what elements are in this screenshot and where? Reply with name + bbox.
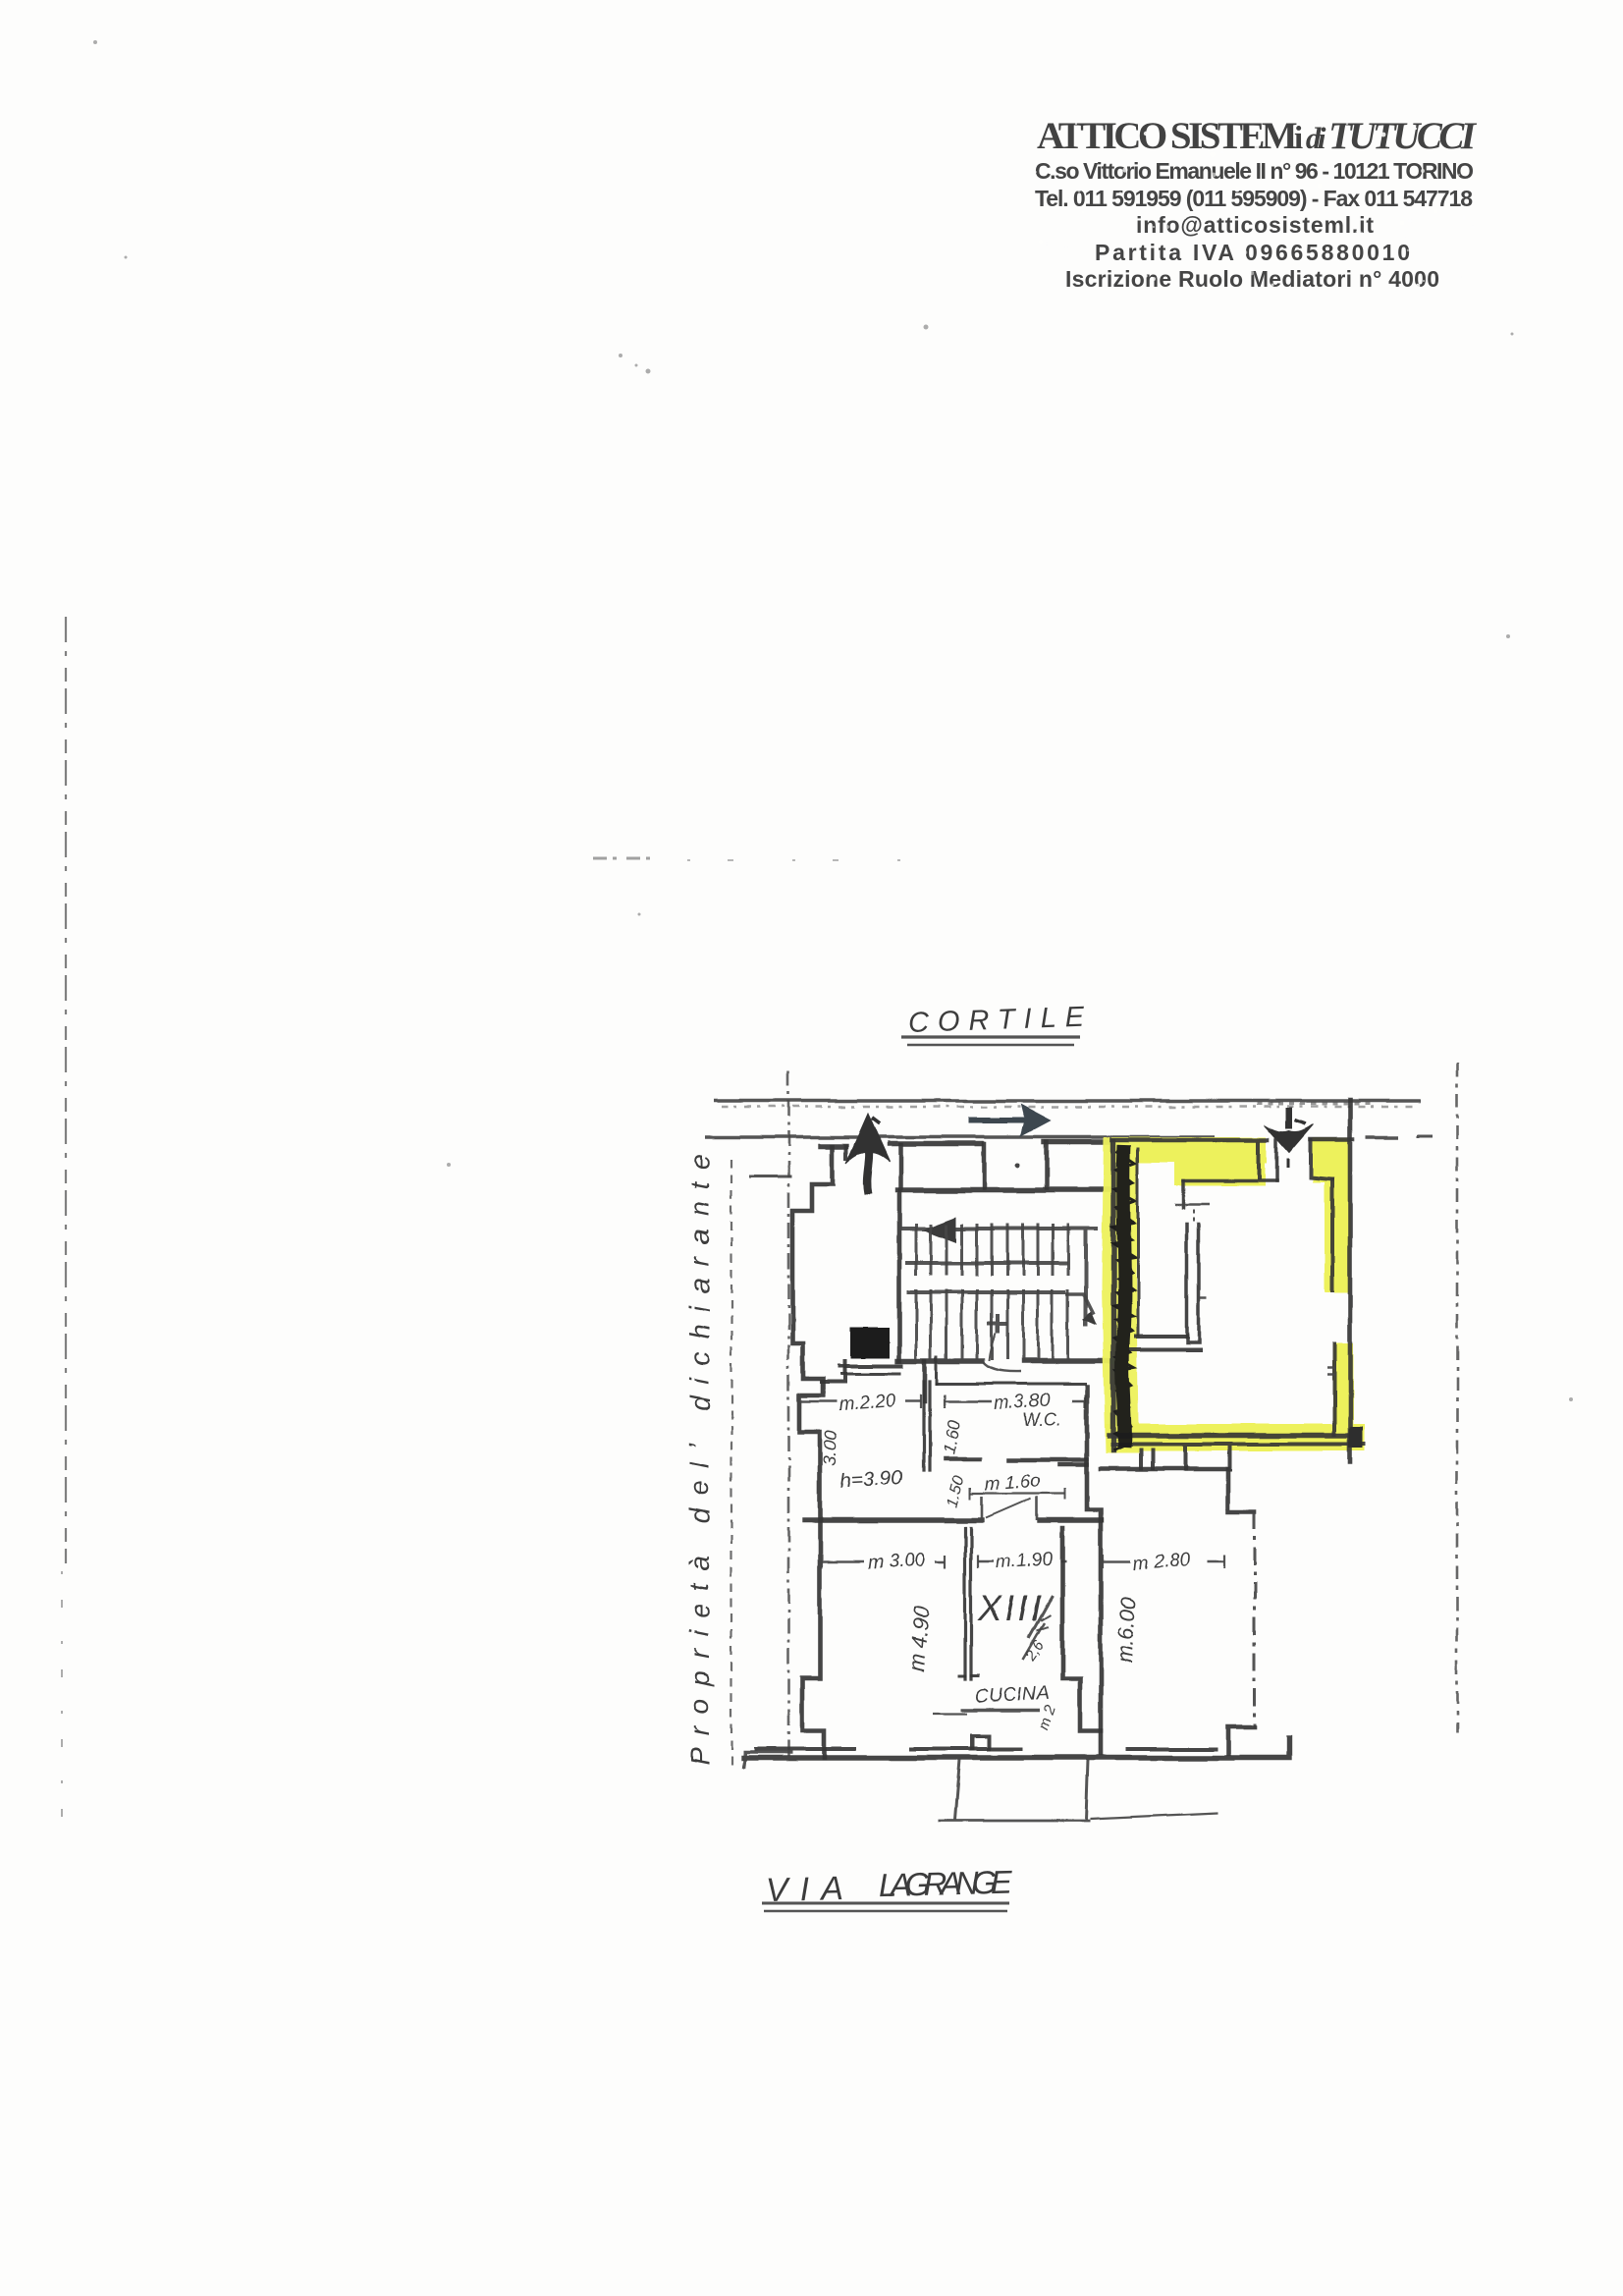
svg-text:h=3.90: h=3.90 xyxy=(839,1466,904,1492)
svg-text:m 1.6o: m 1.6o xyxy=(983,1471,1041,1496)
svg-text:info@atticosisteml.it: info@atticosisteml.it xyxy=(1136,212,1374,238)
svg-text:m.1.90: m.1.90 xyxy=(995,1549,1054,1573)
svg-text:CUCINA: CUCINA xyxy=(974,1683,1050,1708)
svg-text:1.60: 1.60 xyxy=(939,1419,964,1456)
svg-text:W.C.: W.C. xyxy=(1023,1410,1061,1430)
svg-text:Proprietà delʼ dichiarante: Proprietà delʼ dichiarante xyxy=(684,1152,715,1766)
svg-text:ATTICO SISTEMi di TUTUCCI: ATTICO SISTEMi di TUTUCCI xyxy=(1037,115,1478,157)
svg-text:m 3.00: m 3.00 xyxy=(868,1551,927,1574)
svg-text:Tel. 011 591959 (011 595909) -: Tel. 011 591959 (011 595909) - Fax 011 5… xyxy=(1035,186,1473,211)
svg-text:Iscrizione Ruolo Mediatori n°: Iscrizione Ruolo Mediatori n° 4000 xyxy=(1065,266,1439,292)
svg-text:Partita IVA 09665880010: Partita IVA 09665880010 xyxy=(1095,240,1410,265)
svg-text:m 4.90: m 4.90 xyxy=(904,1605,934,1673)
svg-text:m.6.00: m.6.00 xyxy=(1112,1596,1141,1664)
svg-text:XIII: XIII xyxy=(977,1588,1045,1628)
svg-text:2,6: 2,6 xyxy=(1022,1637,1049,1665)
svg-text:C.so Vittorio Emanuele II n°: C.so Vittorio Emanuele II n° 96 - 10121 … xyxy=(1035,158,1474,184)
svg-text:m 2.80: m 2.80 xyxy=(1132,1550,1191,1574)
svg-text:1.50: 1.50 xyxy=(944,1474,968,1508)
svg-text:m 2: m 2 xyxy=(1035,1702,1059,1731)
svg-text:m.2.20: m.2.20 xyxy=(838,1391,896,1415)
svg-text:CORTILE: CORTILE xyxy=(907,1001,1093,1039)
svg-text:LAGRANGE: LAGRANGE xyxy=(878,1864,1013,1904)
svg-text:3.00: 3.00 xyxy=(819,1430,841,1466)
